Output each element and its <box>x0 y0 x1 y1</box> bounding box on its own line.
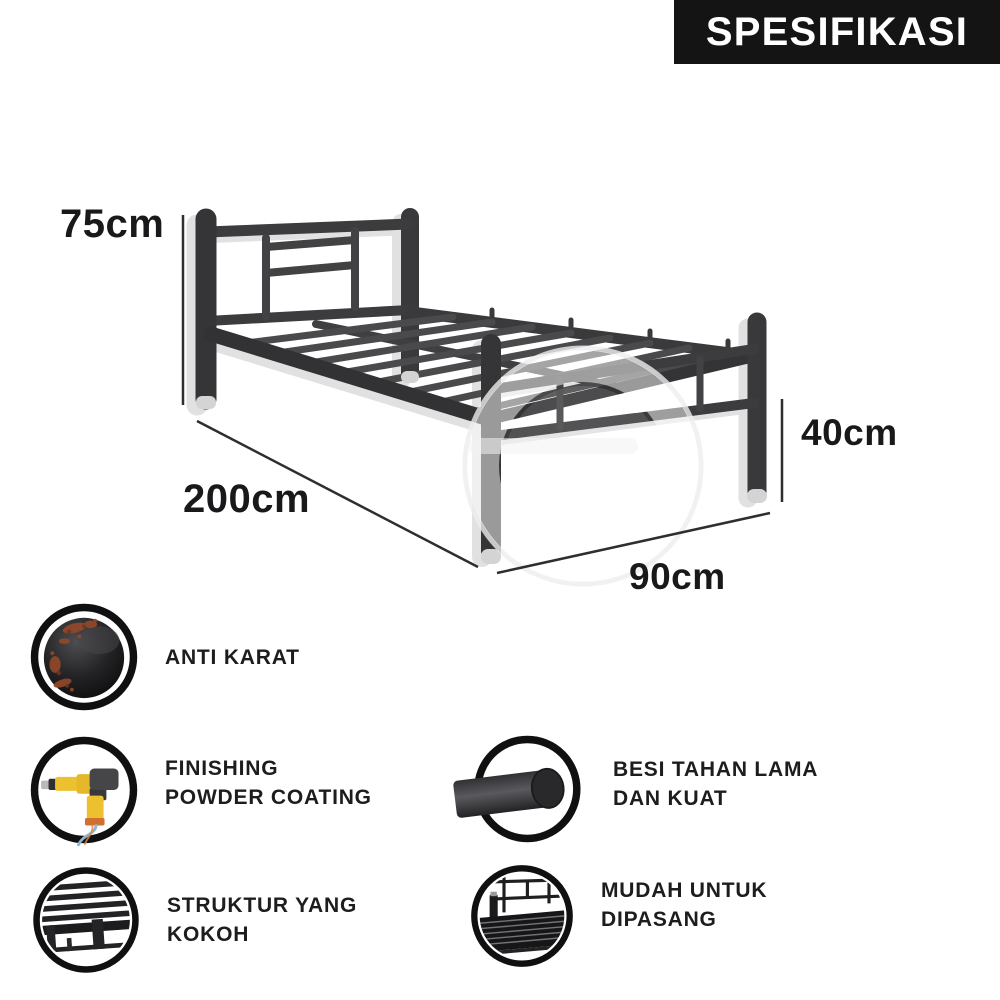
spec-banner: SPESIFIKASI <box>674 0 1000 64</box>
feature-label: STRUKTUR YANG <box>167 891 357 920</box>
feature-label: POWDER COATING <box>165 783 372 812</box>
headboard-height-label: 75cm <box>60 202 164 247</box>
spray-gun-icon <box>28 734 140 846</box>
rust-globe-icon <box>28 601 140 713</box>
feature-strong-iron: BESI TAHAN LAMA DAN KUAT <box>462 733 818 845</box>
feature-easy-assembly: MUDAH UNTUK DIPASANG <box>468 860 767 972</box>
feature-label: BESI TAHAN LAMA <box>613 755 818 784</box>
spec-banner-title: SPESIFIKASI <box>706 10 968 55</box>
feature-label: DAN KUAT <box>613 784 818 813</box>
bed-assembly-icon <box>468 860 576 972</box>
feature-label: DIPASANG <box>601 905 767 934</box>
width-label: 90cm <box>629 556 726 598</box>
footboard-height-label: 40cm <box>801 412 898 454</box>
frame-structure-icon <box>30 864 142 976</box>
feature-label: ANTI KARAT <box>165 643 300 672</box>
feature-powder-coating: FINISHING POWDER COATING <box>28 734 372 846</box>
feature-label: FINISHING <box>165 754 372 783</box>
feature-anti-karat: ANTI KARAT <box>28 601 300 713</box>
metal-rod-icon <box>462 733 588 845</box>
length-label: 200cm <box>183 477 310 522</box>
feature-label: MUDAH UNTUK <box>601 876 767 905</box>
spec-infographic: SPESIFIKASI 75cm 200cm 40cm 90cm <box>0 0 1000 1000</box>
feature-sturdy-structure: STRUKTUR YANG KOKOH <box>30 864 357 976</box>
feature-label: KOKOH <box>167 920 357 949</box>
bed-diagram <box>0 0 1000 1000</box>
